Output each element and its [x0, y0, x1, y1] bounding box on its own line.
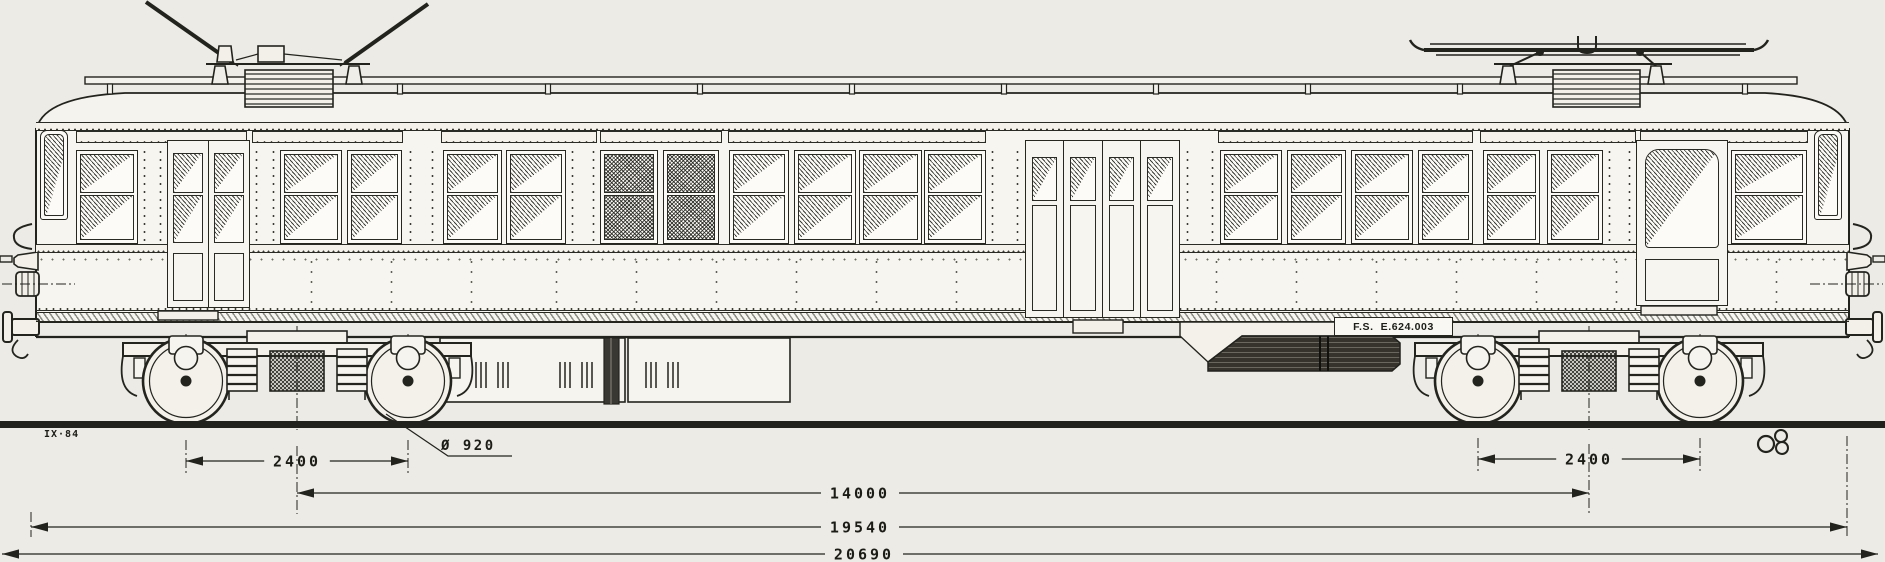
technical-drawing-canvas: 24002400140001954020690 F.S. E.624.003 I…: [0, 0, 1885, 562]
dimension-layer: 24002400140001954020690: [0, 0, 1885, 562]
door-step-right: [1641, 306, 1717, 315]
door-step-left: [158, 311, 218, 320]
dimension-label: 20690: [834, 546, 894, 562]
dimension-label: 14000: [830, 485, 890, 503]
dimension-bogie-centres: 14000: [297, 485, 1589, 503]
vehicle-number-plate: F.S. E.624.003: [1334, 317, 1453, 336]
dimension-body-length: 19540: [31, 519, 1847, 537]
date-mark: IX·84: [44, 429, 79, 440]
dimension-label: 19540: [830, 519, 890, 537]
door-step-center: [1073, 320, 1123, 333]
dimension-overall-length: 20690: [2, 546, 1878, 562]
artist-monogram-icon: [1758, 430, 1788, 454]
vehicle-number: F.S. E.624.003: [1353, 321, 1434, 333]
wheel-diameter-label: Ø 920: [441, 438, 496, 454]
